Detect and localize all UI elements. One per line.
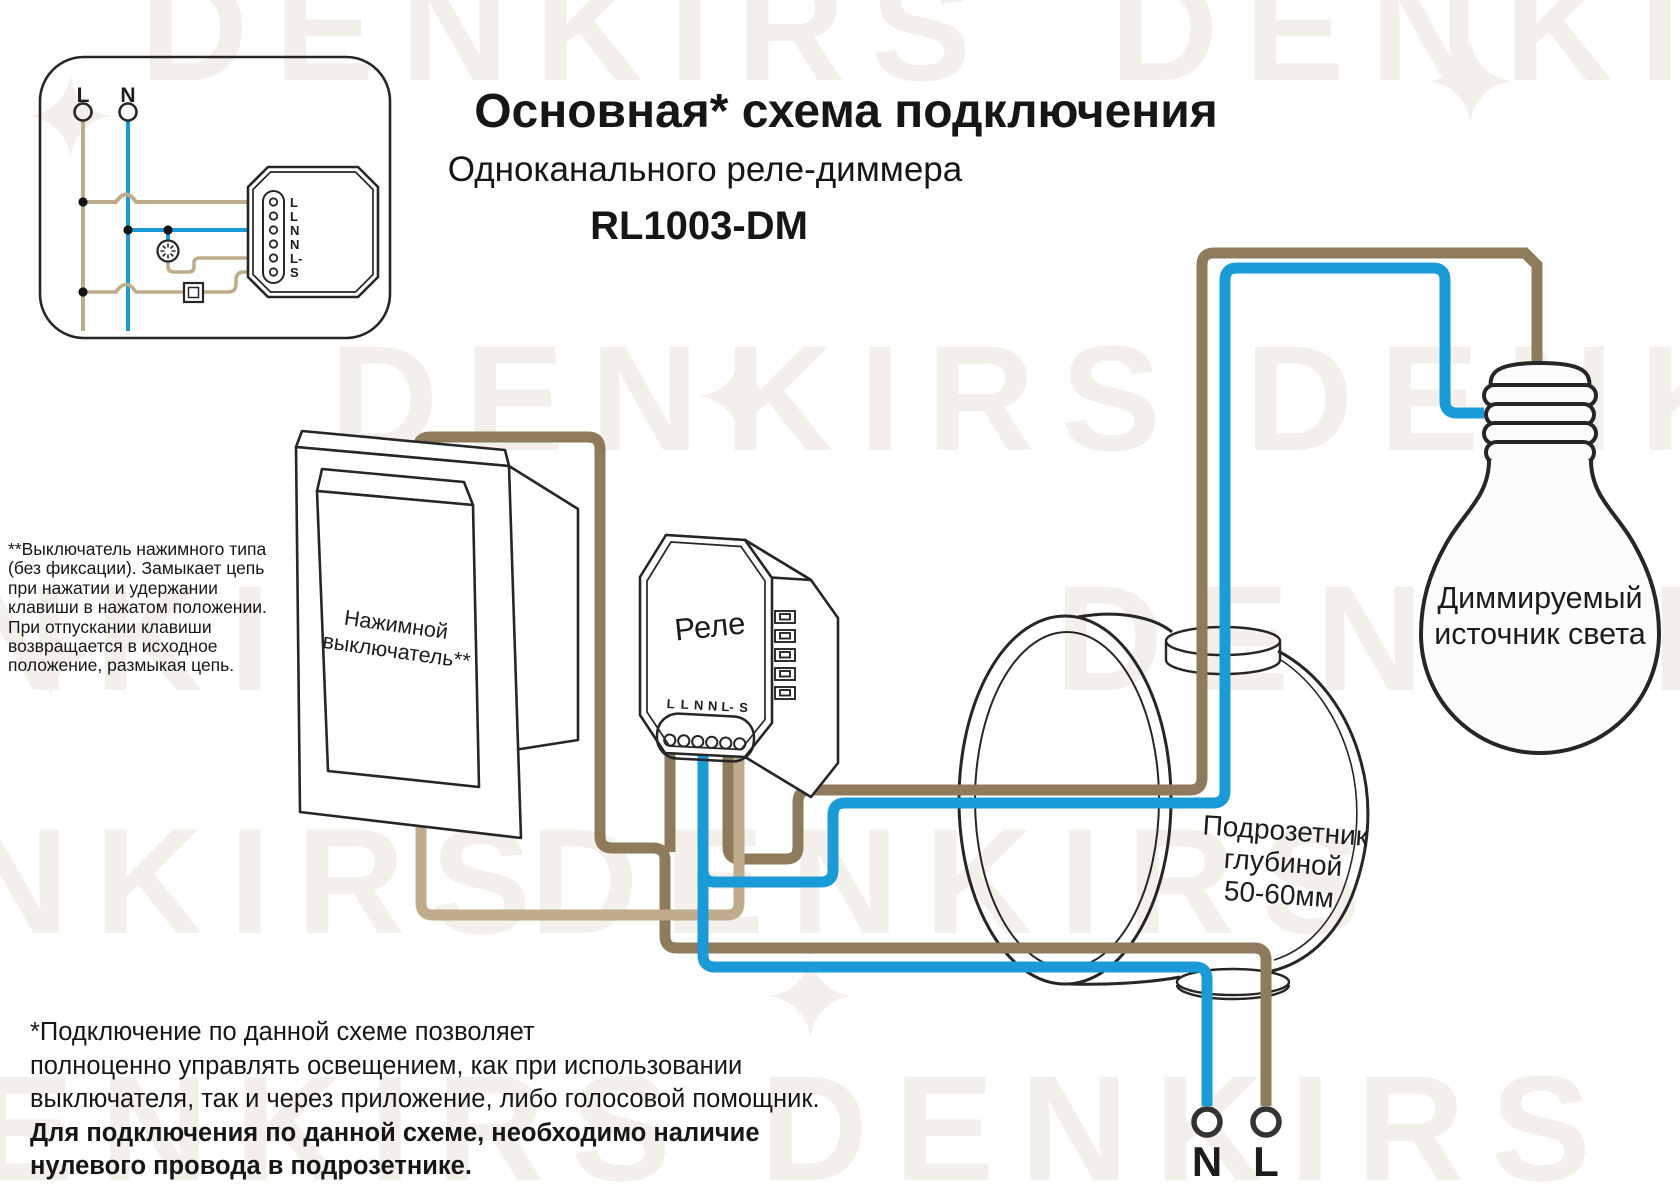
relay-terminal-label: S [739,700,749,715]
bulb-screw-threads [1484,385,1596,463]
wiring [418,253,1537,1106]
push-switch: Нажимной выключатель** [296,431,578,838]
mains-live-label: L [1253,1138,1279,1184]
inset-schematic: L N [40,57,390,338]
relay-terminal-label: N [694,697,704,712]
footnote-line: При отпускании клавиши [8,618,267,637]
inset-terminal-label: L [290,209,298,224]
inset-terminal-label: L- [290,251,302,266]
mains-neutral-terminal [1194,1109,1220,1135]
inset-terminal-label: S [290,265,299,280]
socket-box-label: 50-60мм [1223,875,1335,914]
footnote-line: положение, размыкая цепь. [8,656,267,675]
footnote-line: клавиши в нажатом положении. [8,598,267,617]
inset-l-connection [83,195,264,203]
switch-back-box [509,466,578,750]
relay-terminal-label: L- [721,699,734,715]
inset-junction-dot [123,225,132,234]
inset-lamp-icon [158,241,179,262]
note-line: полноценно управлять освещением, как при… [30,1050,820,1084]
bulb-label: источник света [1434,617,1645,651]
inset-junction-dot [163,225,172,234]
inset-junction-dot [78,197,87,206]
inset-junction-dot [78,287,87,296]
note-line-bold: Для подключения по данной схеме, необход… [30,1117,820,1151]
diagram-page: DENKIRS DENKIRS DENKIRS DENKIRS DENKIRS … [0,0,1680,1184]
relay-module: Реле L L N N L- S [640,535,838,797]
socket-box-right-edge [1272,651,1368,971]
relay-terminal-label: L [680,697,689,712]
footnote-line: при нажатии и удержании [8,579,267,598]
note-line: *Подключение по данной схеме позволяет [30,1016,820,1050]
relay-terminal-label: L [666,696,675,711]
switch-footnote: **Выключатель нажимного типа (без фиксац… [8,540,267,676]
mains-neutral-label: N [1192,1138,1222,1184]
light-bulb: Диммируемый источник света [1421,363,1659,753]
connection-note: *Подключение по данной схеме позволяет п… [30,1016,820,1184]
inset-switch-wire-in [83,285,184,293]
inset-switch-icon [184,283,203,302]
relay-label: Реле [673,605,747,647]
inset-relay: L L N N L- S [248,167,378,297]
inset-terminal-label: N [290,223,299,238]
page-subtitle: Одноканального реле-диммера [448,150,962,190]
socket-box-bottom-collar [1177,969,1289,999]
mains-live-terminal [1253,1109,1279,1135]
note-line-bold: нулевого провода в подрозетнике. [30,1150,820,1184]
footnote-line: возвращается в исходное [8,637,267,656]
inset-terminal-label: L [290,195,298,210]
relay-terminal-label: N [708,698,718,713]
inset-terminal-label: N [290,237,299,252]
wire-dimmed-output-to-bulb [728,253,1537,859]
note-line: выключателя, так и через приложение, либ… [30,1083,820,1117]
page-title: Основная* схема подключения [474,84,1218,139]
bulb-label: Диммируемый [1437,581,1642,615]
mains-terminals: N L [1192,1109,1279,1184]
footnote-line: (без фиксации). Замыкает цепь [8,559,267,578]
footnote-line: **Выключатель нажимного типа [8,540,267,559]
model-number: RL1003-DM [590,204,808,249]
